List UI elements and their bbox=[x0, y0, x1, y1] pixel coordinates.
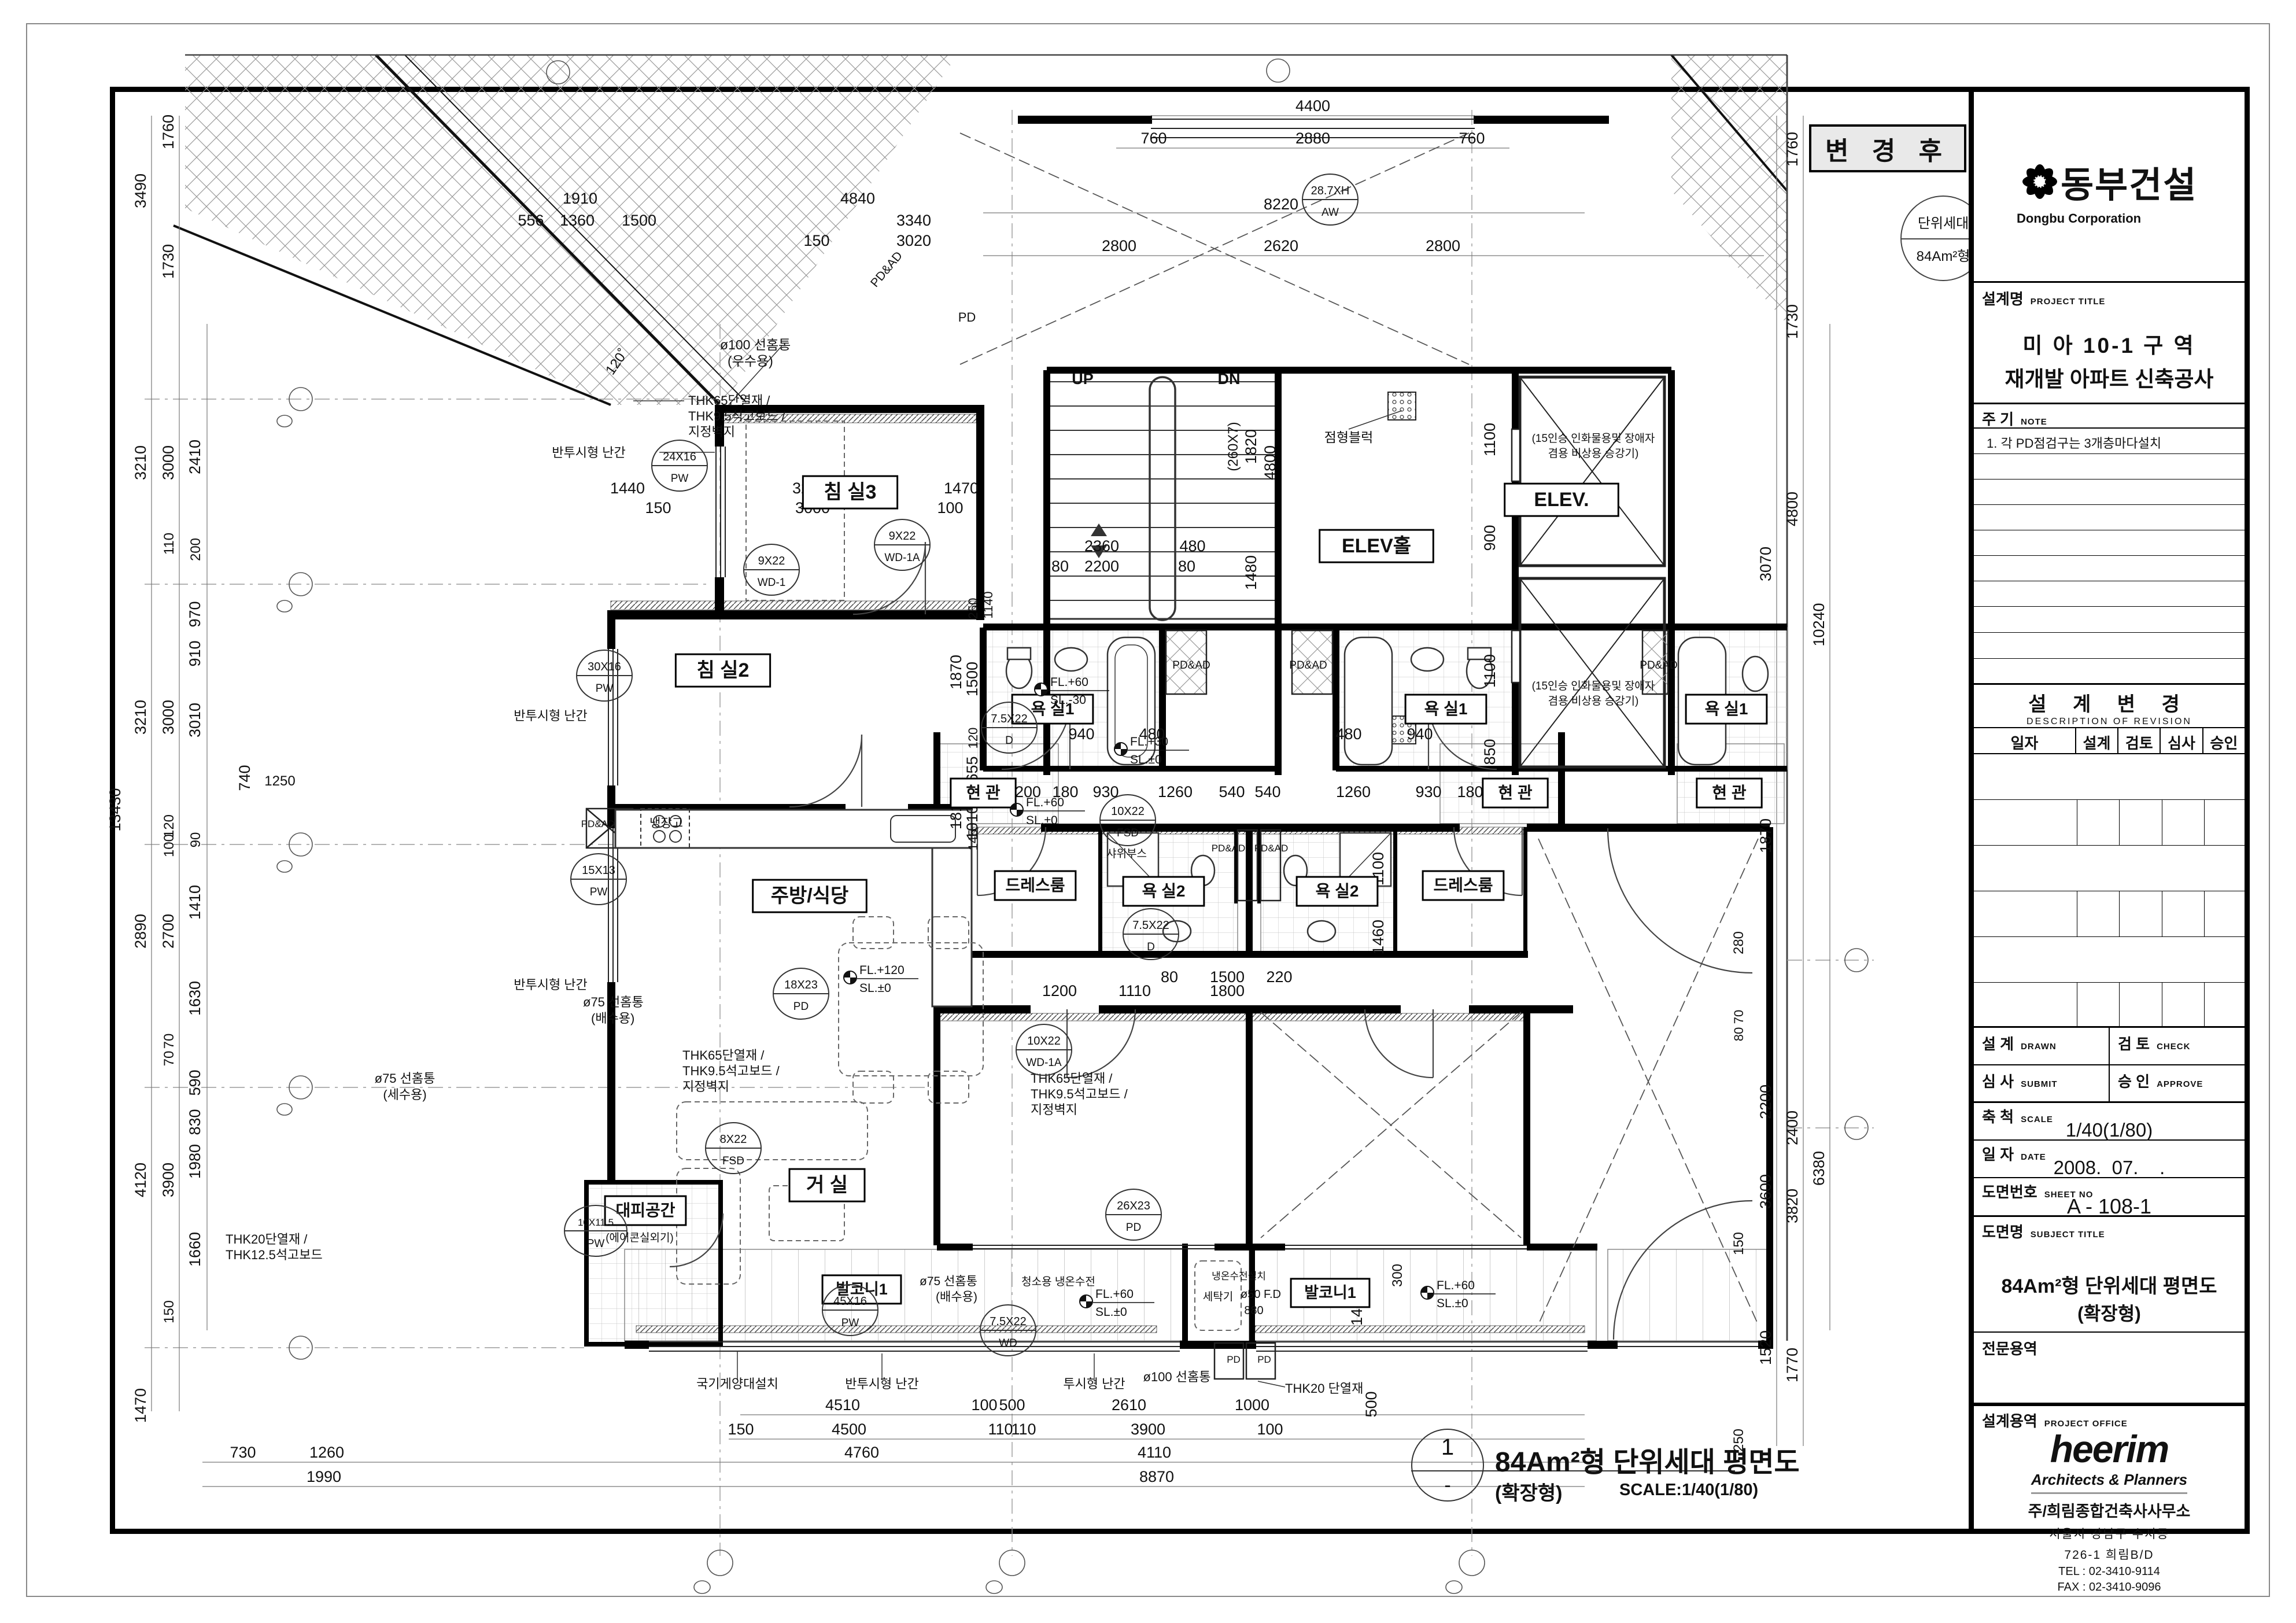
dimension-text: 1730 bbox=[1784, 304, 1801, 339]
dimension-text: 100 bbox=[161, 834, 177, 857]
scale-value: 1/40(1/80) bbox=[1974, 1119, 2245, 1141]
note-empty-row bbox=[1974, 479, 2245, 505]
room-label: 침 실3 bbox=[824, 481, 877, 503]
dimension-text: 110 bbox=[1011, 1421, 1036, 1438]
dimension-text: 1110 bbox=[1119, 982, 1151, 999]
dimension-text: 1410 bbox=[186, 885, 204, 920]
room-label: ELEV홀 bbox=[1342, 535, 1411, 557]
revision-empty-row bbox=[1974, 891, 2245, 937]
design-service-row: 설계용역PROJECT OFFICE heerim Architects & P… bbox=[1974, 1406, 2245, 1534]
note-header: 주 기NOTE bbox=[1974, 404, 2245, 429]
detail-dash: - bbox=[1412, 1474, 1483, 1497]
dimension-text: 110 bbox=[988, 1421, 1013, 1438]
dimension-text: 120 bbox=[966, 728, 980, 749]
annotation-text: ø75 선홈통 bbox=[375, 1071, 435, 1086]
tag-type-text: PD bbox=[1126, 1222, 1141, 1234]
project-label: 설계명 bbox=[1982, 290, 2024, 308]
tag-type-text: FSD bbox=[722, 1155, 744, 1167]
annotation-text: 냉장고 bbox=[649, 817, 683, 830]
dimension-text: 4800 bbox=[1261, 445, 1279, 480]
annotation-text: PD bbox=[1227, 1354, 1241, 1365]
annotation-text: 지정벽지 bbox=[1031, 1102, 1077, 1117]
dimension-text: 1000 bbox=[1235, 1396, 1269, 1414]
level-sl-text: SL.±0 bbox=[1130, 753, 1162, 766]
drawing-title-subtitle: (확장형) bbox=[1495, 1477, 1562, 1506]
tag-type-text: PD bbox=[793, 1001, 809, 1013]
note-item-1: 1. 각 PD점검구는 3개층마다설치 bbox=[1974, 429, 2245, 454]
revision-empty-row bbox=[1974, 937, 2245, 983]
revision-header: 설 계 변 경 DESCRIPTION OF REVISION bbox=[1974, 685, 2245, 728]
note-empty-row bbox=[1974, 454, 2245, 479]
dimension-text: 145 bbox=[966, 829, 980, 851]
tag-type-text: PW bbox=[671, 473, 689, 485]
date-row: 일 자DATE 2008. 07. . bbox=[1974, 1141, 2245, 1178]
note-empty-row bbox=[1974, 581, 2245, 607]
note-empty-row bbox=[1974, 556, 2245, 581]
annotation-text: 겸용 비상용 승강기) bbox=[1548, 447, 1639, 460]
dimension-text: 480 bbox=[1335, 725, 1361, 743]
annotation-text: (15인승 인화물용및 장애자 bbox=[1532, 680, 1655, 692]
tag-size-text: 30X16 bbox=[588, 661, 621, 673]
detail-number: 1 bbox=[1412, 1434, 1483, 1460]
dimension-text: 1140 bbox=[981, 591, 995, 618]
dimension-text: 3070 bbox=[1757, 547, 1774, 581]
dimension-text: 1440 bbox=[610, 479, 645, 497]
dimension-text: 6380 bbox=[1810, 1151, 1828, 1186]
annotation-text: PD&AD bbox=[581, 818, 615, 829]
annotation-text: PD bbox=[958, 310, 976, 324]
tag-type-text: PW bbox=[596, 683, 614, 695]
annotation-text: THK65단열재 / bbox=[682, 1048, 765, 1063]
revision-col-review: 검토 bbox=[2118, 728, 2161, 753]
dimension-text: 1870 bbox=[1757, 818, 1774, 853]
dimension-text: 150 bbox=[1731, 1232, 1747, 1255]
annotation-text: ø75 선홈통 bbox=[583, 995, 644, 1009]
annotation-text: PD&AD bbox=[1289, 659, 1327, 672]
tag-type-text: WD-1A bbox=[1026, 1057, 1062, 1069]
note-label-en: NOTE bbox=[2021, 417, 2047, 427]
dimension-text: 2800 bbox=[1426, 237, 1460, 254]
dimension-text: 730 bbox=[230, 1444, 256, 1461]
tag-size-text: 10X22 bbox=[1111, 805, 1145, 818]
dimension-text: 4120 bbox=[132, 1163, 149, 1197]
heerim-fax: FAX : 02-3410-9096 bbox=[1974, 1581, 2245, 1594]
dimension-text: 1200 bbox=[1042, 982, 1077, 999]
drawing-title: 1 - 84Am²형 단위세대 평면도 (확장형) SCALE:1/40(1/8… bbox=[1411, 1429, 1804, 1510]
annotation-text: 겸용 비상용 승강기) bbox=[1548, 695, 1639, 707]
room-label: 침 실2 bbox=[697, 659, 750, 681]
dimension-text: 1460 bbox=[1370, 920, 1387, 954]
tag-size-text: 9X22 bbox=[758, 555, 785, 567]
dimension-text: 110 bbox=[161, 533, 177, 555]
spec-service-row: 전문용역 bbox=[1974, 1333, 2245, 1406]
dimension-text: 300 bbox=[1390, 1264, 1405, 1287]
dimension-text: 2800 bbox=[1102, 237, 1136, 254]
dimension-text: 1870 bbox=[947, 655, 965, 689]
dimension-text: 80 bbox=[1161, 968, 1178, 986]
spec-service-label: 전문용역 bbox=[1982, 1340, 2037, 1358]
dimension-text: 100 bbox=[1257, 1421, 1283, 1438]
dimension-text: 1660 bbox=[186, 1232, 204, 1267]
revision-col-date: 일자 bbox=[1974, 728, 2076, 753]
annotation-text: ø50 F.D bbox=[1241, 1288, 1281, 1301]
dimension-text: 70 bbox=[161, 1034, 177, 1049]
level-marker-quadrant bbox=[844, 971, 850, 978]
note-label: 주 기 bbox=[1982, 411, 2014, 428]
dimension-text: 740 bbox=[236, 765, 253, 791]
dimension-text: 8870 bbox=[1139, 1468, 1174, 1485]
dimension-text: 970 bbox=[186, 601, 204, 627]
annotation-text: THK20 단열재 bbox=[1285, 1381, 1363, 1396]
annotation-text: 반투시형 난간 bbox=[552, 445, 626, 460]
annotation-text: THK12.5석고보드 bbox=[226, 1248, 323, 1262]
drawing-title-text: 84Am²형 단위세대 평면도 bbox=[1495, 1439, 1800, 1480]
tag-size-text: 24X16 bbox=[663, 451, 696, 463]
annotation-text: UP bbox=[1072, 370, 1094, 388]
annotation-text: 샤위부스 bbox=[1106, 847, 1147, 860]
annotation-text: PD&AD bbox=[1172, 659, 1210, 672]
room-label: 드레스룸 bbox=[1433, 876, 1493, 894]
annotation-text: THK65단열재 / bbox=[1031, 1071, 1113, 1086]
dimension-text: 940 bbox=[1068, 725, 1094, 743]
tag-size-text: 18X23 bbox=[784, 979, 818, 991]
annotation-text: PD bbox=[1257, 1354, 1271, 1365]
dimension-text: 3490 bbox=[132, 174, 149, 208]
room-label: 대피공간 bbox=[615, 1201, 675, 1219]
level-sl-text: SL.-30 bbox=[1050, 694, 1086, 707]
dimension-text: 3340 bbox=[896, 212, 931, 229]
dimension-text: 100 bbox=[937, 499, 963, 517]
dimension-text: 940 bbox=[1407, 725, 1433, 743]
dimension-text: 3900 bbox=[1131, 1421, 1165, 1438]
room-label: 욕 실1 bbox=[1424, 700, 1468, 718]
dimension-text: 2410 bbox=[186, 440, 204, 474]
level-marker-quadrant bbox=[850, 978, 857, 984]
room-label: 드레스룸 bbox=[1005, 876, 1065, 894]
annotation-text: ø75 선홈통 bbox=[920, 1275, 977, 1288]
dimension-text: 1630 bbox=[186, 981, 204, 1016]
annotation-text: THK65단열재 / bbox=[688, 393, 770, 408]
revision-empty-row bbox=[1974, 983, 2245, 1028]
dimension-text: 1800 bbox=[1210, 982, 1245, 999]
project-title-line1: 미 아 10-1 구 역 bbox=[1974, 328, 2245, 359]
revision-col-design: 설계 bbox=[2076, 728, 2118, 753]
dimension-text: 2610 bbox=[1112, 1396, 1146, 1414]
heerim-address1: 서울시 강남구 수서동 bbox=[1974, 1525, 2245, 1542]
tag-size-text: 15X13 bbox=[582, 864, 615, 877]
annotation-text: THK9.5석고보드 / bbox=[688, 409, 786, 423]
annotation-text: 지정벽지 bbox=[688, 425, 735, 439]
room-label: 욕 실2 bbox=[1142, 882, 1186, 900]
dimension-text: 1100 bbox=[1481, 654, 1498, 688]
drawn-check-row: 설 계DRAWN 검 토CHECK bbox=[1974, 1028, 2245, 1065]
company-name: 동부건설 bbox=[2061, 165, 2197, 205]
check-label: 검 토 bbox=[2118, 1035, 2150, 1053]
tag-size-text: 8X22 bbox=[720, 1133, 747, 1146]
heerim-tagline: Architects & Planners bbox=[2031, 1471, 2187, 1494]
dimension-text: 1980 bbox=[186, 1144, 204, 1179]
level-fl-text: FL.+30 bbox=[1130, 735, 1168, 748]
annotation-text: 반투시형 난간 bbox=[845, 1377, 919, 1391]
dimension-text: 13430 bbox=[106, 788, 124, 831]
dimension-text: 2620 bbox=[1264, 237, 1298, 254]
dimension-text: 830 bbox=[186, 1109, 204, 1135]
level-sl-text: SL.±0 bbox=[1437, 1297, 1468, 1310]
stamp-text: 변 경 후 bbox=[1825, 130, 1950, 167]
check-label-en: CHECK bbox=[2157, 1042, 2190, 1052]
dimension-text: 2890 bbox=[132, 914, 149, 949]
drawing-sheet: 4400760288076082202800262028001910556136… bbox=[0, 0, 2296, 1623]
dimension-text: 1910 bbox=[563, 190, 597, 207]
submit-approve-row: 심 사SUBMIT 승 인APPROVE bbox=[1974, 1065, 2245, 1103]
annotation-text: 반투시형 난간 bbox=[514, 978, 588, 992]
annotation-text: (우수용) bbox=[728, 353, 773, 368]
dimension-text: 2360 bbox=[1084, 537, 1119, 555]
annotation-text: 지정벽지 bbox=[682, 1079, 729, 1094]
submit-label: 심 사 bbox=[1982, 1073, 2014, 1090]
dimension-text: 540 bbox=[1219, 783, 1245, 801]
room-label: 욕 실1 bbox=[1705, 700, 1748, 718]
dimension-text: 2700 bbox=[160, 914, 177, 949]
dimension-text: (260X7) bbox=[1225, 422, 1241, 471]
annotation-text: THK9.5석고보드 / bbox=[1031, 1087, 1128, 1101]
tag-size-text: 9X22 bbox=[889, 530, 916, 543]
annotation-text: 세탁기 bbox=[1203, 1290, 1233, 1303]
subject-label-en: SUBJECT TITLE bbox=[2031, 1230, 2105, 1240]
dimension-text: 180 bbox=[1457, 783, 1483, 801]
dimension-text: 4800 bbox=[1784, 492, 1801, 526]
subject-label: 도면명 bbox=[1982, 1223, 2024, 1241]
dimension-text: 590 bbox=[186, 1069, 204, 1095]
room-label: 거 실 bbox=[806, 1174, 848, 1196]
dimension-text: 3020 bbox=[896, 232, 931, 249]
tag-type-text: D bbox=[1005, 735, 1013, 747]
level-fl-text: FL.+120 bbox=[859, 964, 905, 977]
tag-type-text: FSD bbox=[1117, 827, 1139, 839]
annotation-text: (배수용) bbox=[936, 1290, 977, 1304]
note-empty-row bbox=[1974, 607, 2245, 633]
dimension-text: 2200 bbox=[1084, 558, 1119, 575]
dimension-text: 70 bbox=[1732, 1010, 1746, 1024]
dimension-text: 850 bbox=[1481, 739, 1498, 765]
dimension-text: 80 bbox=[1051, 558, 1069, 575]
title-block: 동부건설 Dongbu Corporation 설계명PROJECT TITLE… bbox=[1969, 87, 2250, 1534]
subject-row: 도면명SUBJECT TITLE 84Am²형 단위세대 평면도 (확장형) bbox=[1974, 1217, 2245, 1333]
dimension-text: 220 bbox=[1266, 968, 1292, 986]
tag-type-text: WD-1A bbox=[884, 552, 920, 564]
heerim-company: 주/희림종합건축사사무소 bbox=[1974, 1499, 2245, 1521]
annotation-text: THK9.5석고보드 / bbox=[682, 1064, 780, 1078]
annotation-text: THK20단열재 / bbox=[226, 1232, 308, 1246]
revision-col-exam: 심사 bbox=[2161, 728, 2203, 753]
dimension-text: 1470 bbox=[944, 479, 979, 497]
dimension-text: 3600 bbox=[1757, 1174, 1774, 1209]
dimension-text: 80 bbox=[1178, 558, 1195, 575]
dimension-text: 150 bbox=[728, 1421, 754, 1438]
dimension-text: 10240 bbox=[1810, 603, 1828, 646]
subject-value-line2: (확장형) bbox=[1974, 1299, 2245, 1326]
tag-type-text: PW bbox=[590, 886, 608, 898]
dimension-text: 200 bbox=[188, 538, 204, 561]
tag-size-text: 7.5X22 bbox=[991, 713, 1027, 725]
tag-size-text: 10X22 bbox=[1027, 1035, 1061, 1047]
dimension-text: 1730 bbox=[160, 244, 177, 279]
note-empty-row bbox=[1974, 659, 2245, 685]
dimension-text: 150 bbox=[645, 499, 671, 517]
dimension-text: 70 bbox=[161, 1051, 177, 1067]
room-label: ELEV. bbox=[1534, 489, 1589, 511]
tag-size-text: 10X11.5 bbox=[578, 1217, 614, 1228]
tag-size-text: 7.5X22 bbox=[1132, 919, 1169, 932]
annotation-text: DN bbox=[1218, 370, 1241, 388]
annotation-text: 청소용 냉온수전 bbox=[1021, 1275, 1095, 1288]
annotation-text: PD&AD bbox=[1212, 843, 1246, 854]
dimension-text: 500 bbox=[999, 1396, 1025, 1414]
level-sl-text: SL.±0 bbox=[1095, 1305, 1127, 1319]
dimension-text: 2400 bbox=[1784, 1111, 1801, 1145]
tag-type-text: D bbox=[1147, 941, 1155, 953]
approve-label: 승 인 bbox=[2118, 1073, 2150, 1090]
tag-type-text: WD-1 bbox=[758, 577, 786, 589]
dimension-text: 4510 bbox=[825, 1396, 860, 1414]
note-empty-row bbox=[1974, 530, 2245, 556]
dimension-text: 3210 bbox=[132, 445, 149, 480]
tag-size-text: 26X23 bbox=[1117, 1200, 1150, 1212]
staircase bbox=[1050, 377, 1275, 620]
dimension-text: 4840 bbox=[840, 190, 875, 207]
dimension-text: 2880 bbox=[1295, 130, 1330, 147]
dimension-text: 556 bbox=[518, 212, 544, 229]
dimension-text: 3000 bbox=[160, 700, 177, 735]
dimension-text: 3820 bbox=[1784, 1189, 1801, 1223]
revision-title: 설 계 변 경 bbox=[1974, 688, 2245, 717]
dimension-text: 8220 bbox=[1264, 196, 1298, 213]
dimension-text: 1760 bbox=[1784, 132, 1801, 167]
dimension-text: 760 bbox=[1140, 130, 1167, 147]
level-fl-text: FL.+60 bbox=[1437, 1279, 1475, 1292]
dimension-text: 3000 bbox=[160, 445, 177, 480]
submit-label-en: SUBMIT bbox=[2021, 1079, 2058, 1089]
dimension-text: 1990 bbox=[307, 1468, 341, 1485]
room-label: 현 관 bbox=[1712, 784, 1747, 802]
dimension-text: 150 bbox=[803, 232, 829, 249]
room-label: 욕 실2 bbox=[1316, 882, 1359, 900]
dimension-text: 1100 bbox=[1481, 423, 1498, 456]
dimension-text: 1470 bbox=[132, 1388, 149, 1423]
note-empty-row bbox=[1974, 505, 2245, 530]
room-label: 주방/식당 bbox=[771, 885, 849, 907]
dimension-text: 1480 bbox=[1242, 555, 1260, 590]
tag-type-text: WD bbox=[999, 1337, 1017, 1349]
dimension-text: 3210 bbox=[132, 700, 149, 735]
tag-type-text: PW bbox=[841, 1317, 859, 1329]
dimension-text: 900 bbox=[1481, 525, 1498, 551]
annotation-text: 냉온수전설치 bbox=[1212, 1271, 1266, 1282]
dimension-text: 250 bbox=[966, 598, 980, 619]
dimension-text: 100 bbox=[971, 1396, 997, 1414]
dimension-text: 1500 bbox=[964, 662, 981, 696]
project-label-en: PROJECT TITLE bbox=[2031, 297, 2106, 307]
dimension-text: 80 bbox=[1732, 1027, 1746, 1041]
heerim-logo: heerim bbox=[1974, 1427, 2245, 1471]
revision-subtitle: DESCRIPTION OF REVISION bbox=[1974, 717, 2245, 727]
dimension-text: 1360 bbox=[560, 212, 595, 229]
dimension-text: 1500 bbox=[622, 212, 656, 229]
tag-size-text: 28.7XH bbox=[1311, 185, 1350, 197]
dimension-text: 4760 bbox=[844, 1444, 879, 1461]
revision-stamp: 변 경 후 bbox=[1809, 124, 1966, 172]
dimension-text: 500 bbox=[1363, 1391, 1380, 1417]
dimension-text: 2200 bbox=[1757, 1085, 1774, 1119]
annotation-text: 국기게양대설치 bbox=[696, 1377, 778, 1391]
detail-number-bubble: 1 - bbox=[1411, 1429, 1484, 1502]
project-title-section: 설계명PROJECT TITLE 미 아 10-1 구 역 재개발 아파트 신축… bbox=[1974, 283, 2245, 404]
revision-empty-row bbox=[1974, 754, 2245, 800]
company-logo-section: 동부건설 Dongbu Corporation bbox=[1974, 92, 2245, 283]
room-label: 현 관 bbox=[1498, 784, 1533, 802]
annotation-text: (배수용) bbox=[591, 1011, 634, 1026]
drawn-label-en: DRAWN bbox=[2021, 1042, 2057, 1052]
dimension-text: 1260 bbox=[309, 1444, 344, 1461]
dongbu-flower-icon bbox=[2021, 163, 2058, 200]
sheet-no-value: A - 108-1 bbox=[1974, 1194, 2245, 1219]
note-empty-row bbox=[1974, 633, 2245, 659]
scale-row: 축 척SCALE 1/40(1/80) bbox=[1974, 1103, 2245, 1141]
revision-empty-row bbox=[1974, 800, 2245, 846]
dimension-text: 1260 bbox=[1158, 783, 1193, 801]
tag-size-text: 45X16 bbox=[833, 1295, 867, 1308]
dimension-text: 910 bbox=[186, 640, 204, 666]
revision-columns: 일자 설계 검토 심사 승인 bbox=[1974, 728, 2245, 754]
annotation-text: (세수용) bbox=[383, 1087, 426, 1102]
dimension-text: 1760 bbox=[160, 115, 177, 149]
annotation-text: ø100 선홈통 bbox=[720, 337, 791, 352]
annotation-text: 투시형 난간 bbox=[1063, 1377, 1125, 1391]
annotation-text: ø100 선홈통 bbox=[1143, 1370, 1211, 1384]
drawn-label: 설 계 bbox=[1982, 1035, 2014, 1053]
drawing-title-scale: SCALE:1/40(1/80) bbox=[1619, 1481, 1758, 1500]
dimension-text: 90 bbox=[188, 832, 204, 848]
tiled-floors bbox=[586, 628, 1787, 1344]
annotation-text: PD&AD bbox=[1254, 843, 1289, 854]
level-sl-text: SL.±0 bbox=[859, 982, 891, 995]
dimension-text: 4500 bbox=[832, 1421, 866, 1438]
annotation-text: 점형블럭 bbox=[1324, 430, 1374, 445]
dimension-text: 150 bbox=[161, 1300, 177, 1323]
dimension-text: 4110 bbox=[1138, 1444, 1171, 1461]
room-label: 현 관 bbox=[966, 784, 1001, 802]
level-fl-text: FL.+60 bbox=[1050, 676, 1088, 689]
room-label: 발코니1 bbox=[1304, 1284, 1356, 1301]
dimension-text: 1820 bbox=[1242, 429, 1260, 464]
level-sl-text: SL.±0 bbox=[1026, 814, 1058, 827]
company-name-en: Dongbu Corporation bbox=[1974, 211, 2245, 226]
date-value: 2008. 07. . bbox=[1974, 1157, 2245, 1179]
dimension-text: 930 bbox=[1415, 783, 1441, 801]
dimension-text: 3900 bbox=[160, 1163, 177, 1197]
dimension-text: 880 bbox=[1244, 1304, 1263, 1317]
sheet-no-row: 도면번호SHEET NO A - 108-1 bbox=[1974, 1178, 2245, 1217]
level-fl-text: FL.+60 bbox=[1026, 796, 1064, 809]
approve-label-en: APPROVE bbox=[2157, 1079, 2203, 1089]
subject-value-line1: 84Am²형 단위세대 평면도 bbox=[1974, 1270, 2245, 1299]
annotation-text: 반투시형 난간 bbox=[514, 709, 588, 723]
heerim-tel: TEL : 02-3410-9114 bbox=[1974, 1565, 2245, 1578]
dimension-text: 1520 bbox=[1757, 1330, 1774, 1365]
dimension-text: 760 bbox=[1459, 130, 1485, 147]
heerim-address2: 726-1 희림B/D bbox=[1974, 1545, 2245, 1563]
level-fl-text: FL.+60 bbox=[1095, 1288, 1134, 1301]
